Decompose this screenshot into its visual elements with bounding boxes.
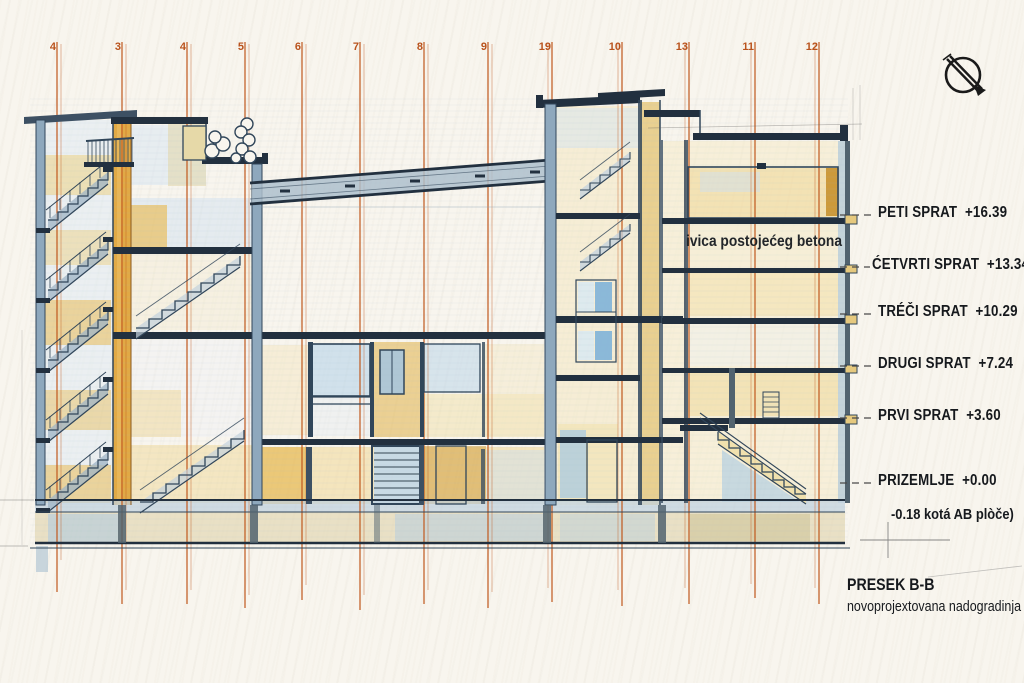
drawing-subtitle: novoprojextovana nadogradinja: [847, 599, 1024, 615]
grid-label-7: 8: [405, 41, 423, 53]
grid-label-12: 11: [736, 41, 754, 53]
level-label-prizemlje: PRIZEMLJE+0.00: [878, 472, 1016, 490]
grid-label-9: 19: [533, 41, 551, 53]
level-label-treci-sprat: TRÉČI SPRAT+10.29: [878, 303, 1024, 321]
grid-label-6: 7: [341, 41, 359, 53]
grid-label-13: 12: [800, 41, 818, 53]
drawing-sheet: 4 3 4 5 6 7 8 9 19 10 13 11 12 PETI SPRA…: [0, 0, 1024, 683]
grid-label-8: 9: [469, 41, 487, 53]
drawing-title: PRESEK B-B: [847, 576, 949, 595]
grid-label-3: 4: [168, 41, 186, 53]
annotation-existing-concrete: ivica postojećeg betona: [686, 233, 867, 251]
level-label-drugi-sprat: DRUGI SPRAT+7.24: [878, 355, 1024, 373]
foundation-note: -0.18 kotá AB plòče): [891, 506, 1024, 523]
grid-label-2: 3: [103, 41, 121, 53]
level-label-cetvrti-sprat: ĆETVRTI SPRAT+13.34: [872, 256, 1024, 274]
level-label-peti-sprat: PETI SPRAT+16.39: [878, 204, 1024, 222]
level-label-prvi-sprat: PRVI SPRAT+3.60: [878, 407, 1021, 425]
grid-label-4: 5: [226, 41, 244, 53]
grid-label-1: 4: [38, 41, 56, 53]
north-arrow-icon: [943, 54, 986, 96]
grid-label-10: 10: [603, 41, 621, 53]
foundation-leader: [860, 522, 950, 558]
grid-label-5: 6: [283, 41, 301, 53]
grid-label-11: 13: [670, 41, 688, 53]
